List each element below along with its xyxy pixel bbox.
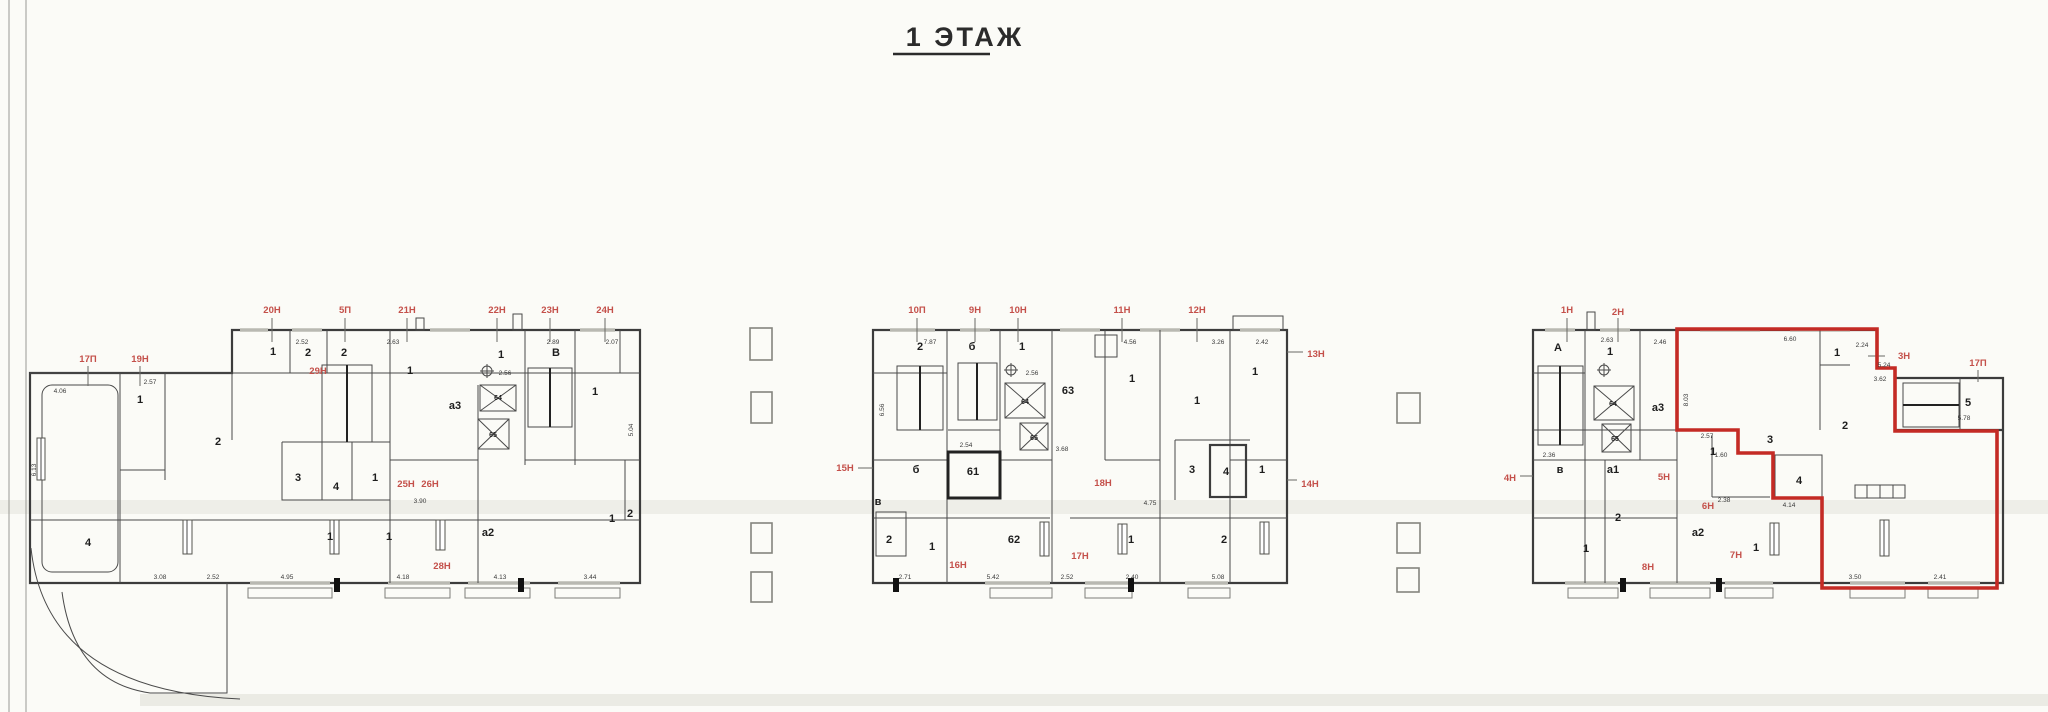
scan-band-bottom	[140, 694, 2048, 706]
hatched-duct-box	[1855, 485, 1905, 498]
unit-label: 21Н	[398, 305, 416, 316]
unit-label: 23Н	[541, 305, 559, 316]
dim-label: 5.24	[1878, 362, 1891, 369]
unit-label: 16Н	[949, 560, 967, 571]
dim-label: 2.36	[1543, 452, 1556, 459]
unit-label: 17П	[79, 354, 97, 365]
room-label: 4	[333, 481, 340, 493]
room-label: а2	[482, 527, 494, 539]
unit-label: 5Н	[1658, 472, 1670, 483]
unit-label: 3Н	[1898, 351, 1910, 362]
dim-label: 3.90	[414, 498, 427, 505]
radiators	[37, 438, 445, 554]
axis-marker	[480, 364, 494, 378]
room-label: 2	[1842, 420, 1848, 432]
room-label: 1	[929, 541, 935, 553]
scan-band	[0, 500, 2048, 514]
room-label: 1	[137, 394, 143, 406]
dim-label: 4.18	[397, 574, 410, 581]
axis-marker	[1597, 363, 1611, 377]
dim-label: 5.04	[628, 423, 635, 436]
room-label: в	[1557, 464, 1564, 476]
room-label: 1	[609, 513, 615, 525]
room-label: 5	[1965, 397, 1971, 409]
dim-label: 2.89	[547, 339, 560, 346]
unit-label: 7Н	[1730, 550, 1742, 561]
floor-plan: 1 ЭТАЖ	[0, 0, 2048, 712]
dim-label: 2.52	[1061, 574, 1074, 581]
dim-label: 4.13	[494, 574, 507, 581]
dim-label: 2.54	[960, 442, 973, 449]
door-marks	[893, 578, 1134, 592]
dim-label: 4.56	[1124, 339, 1137, 346]
room-label: 1	[407, 365, 413, 377]
dim-label: 2.41	[1934, 574, 1947, 581]
unit-label: 9Н	[969, 305, 981, 316]
room-label: 3	[1189, 464, 1195, 476]
room-label: 2	[1221, 534, 1227, 546]
radiators	[1770, 520, 1889, 556]
dim-label: 6.60	[1784, 336, 1797, 343]
room-label: 3	[1767, 434, 1773, 446]
dim-label: 4.95	[281, 574, 294, 581]
door-marks	[1620, 578, 1722, 592]
building-section-middle: 10П 9Н 10Н 11Н 12Н 13Н 15Н 14Н 16Н 17Н 1…	[836, 305, 1325, 598]
dim-label: 2.57	[1701, 433, 1714, 440]
room-label: 64	[494, 395, 502, 402]
plan-title: 1 ЭТАЖ	[893, 22, 1024, 54]
dim-label: 3.68	[1056, 446, 1069, 453]
window-sills	[990, 588, 1230, 598]
dim-label: 4.14	[1783, 502, 1796, 509]
bay-window	[1233, 316, 1283, 330]
room-label: а3	[449, 400, 461, 412]
dim-label: 6.56	[879, 403, 886, 416]
dim-label: 2.46	[1654, 339, 1667, 346]
unit-label: 20Н	[263, 305, 281, 316]
room-label: 1	[327, 531, 333, 543]
window-sills	[248, 588, 620, 598]
room-label: 1	[592, 386, 598, 398]
room-label: 1	[1019, 341, 1025, 353]
dim-label: 2.40	[1126, 574, 1139, 581]
curved-terrace	[31, 548, 240, 699]
page-title: 1 ЭТАЖ	[906, 22, 1024, 52]
dim-label: 2.38	[1718, 497, 1731, 504]
building-section-right: 1Н 2Н 3Н 17П 4Н 5Н 6Н 7Н 8Н А 1 а3 64 65…	[1504, 305, 2003, 598]
room-label: 65	[489, 432, 497, 439]
room-label: 1	[386, 531, 392, 543]
unit-label: 1Н	[1561, 305, 1573, 316]
room-label: 64	[1609, 401, 1617, 408]
dim-label: 2.42	[1256, 339, 1269, 346]
room-label: б	[969, 341, 976, 353]
unit-label: 8Н	[1642, 562, 1654, 573]
room-label: 2	[1615, 512, 1621, 524]
room-label: А	[1554, 342, 1562, 354]
unit-label: 25Н	[397, 479, 415, 490]
dim-label: 2.07	[606, 339, 619, 346]
room-label: 63	[1062, 385, 1074, 397]
unit-label: 17П	[1969, 358, 1987, 369]
unit-label: 4Н	[1504, 473, 1516, 484]
dim-label: 2.52	[296, 339, 309, 346]
dim-label: 3.62	[1874, 376, 1887, 383]
room-label: 2	[341, 347, 347, 359]
unit-label: 10П	[908, 305, 926, 316]
dim-label: 8.03	[1683, 393, 1690, 406]
dim-label: 4.75	[1144, 500, 1157, 507]
room-label: 4	[1796, 475, 1803, 487]
dim-label: 2.63	[387, 339, 400, 346]
room-label: б	[913, 464, 920, 476]
elevator-shafts	[1005, 383, 1048, 450]
shaft	[416, 318, 424, 330]
room-label: 61	[967, 466, 979, 478]
unit-label: 18Н	[1094, 478, 1112, 489]
dim-label: 3.44	[584, 574, 597, 581]
windows	[1545, 330, 1980, 583]
shaft	[1587, 312, 1595, 330]
room-label: 4	[85, 537, 92, 549]
room-label: 2	[627, 508, 633, 520]
unit-label: 17Н	[1071, 551, 1089, 562]
shaft	[513, 314, 522, 330]
dim-label: 2.57	[144, 379, 157, 386]
room-label: 2	[305, 347, 311, 359]
unit-label: 2Н	[1612, 307, 1624, 318]
room-label: 2	[886, 534, 892, 546]
dim-label: 3.26	[1212, 339, 1225, 346]
unit-label: 26Н	[421, 479, 439, 490]
room-label: 1	[1607, 346, 1613, 358]
room-label: 1	[1128, 534, 1134, 546]
dim-label: 2.63	[1601, 337, 1614, 344]
unit-label: 5П	[339, 305, 351, 316]
room-label: 1	[1194, 395, 1200, 407]
room-label: а3	[1652, 402, 1664, 414]
room-label: 1	[1129, 373, 1135, 385]
room-label: 1	[1583, 543, 1589, 555]
room-label: 62	[1008, 534, 1020, 546]
dim-label: 5.08	[1212, 574, 1225, 581]
room-label: 2	[917, 341, 923, 353]
room-label: В	[552, 347, 560, 359]
room-label: 65	[1611, 436, 1619, 443]
unit-label: 28Н	[433, 561, 451, 572]
room-label: в	[875, 496, 882, 508]
room-label: 1	[1834, 347, 1840, 359]
dim-label: 2.24	[1856, 342, 1869, 349]
room-label: 1	[270, 346, 276, 358]
dim-label: 7.87	[924, 339, 937, 346]
unit-label: 11Н	[1114, 305, 1131, 316]
room4-rounded-wall	[42, 385, 118, 572]
unit-label: 22Н	[488, 305, 506, 316]
axis-marker	[1004, 363, 1018, 377]
room-label: 1	[1259, 464, 1265, 476]
dim-label: 2.71	[899, 574, 912, 581]
dim-label: 2.52	[207, 574, 220, 581]
room-label: 1	[1252, 366, 1258, 378]
dim-label: 3.08	[154, 574, 167, 581]
room-label: 1	[498, 349, 504, 361]
room-label: 2	[215, 436, 221, 448]
unit-label: 24Н	[596, 305, 614, 316]
dim-label: 5.42	[987, 574, 1000, 581]
room-label: 3	[295, 472, 301, 484]
room-label: а2	[1692, 527, 1704, 539]
room-label: 64	[1021, 399, 1029, 406]
room-label: 65	[1030, 435, 1038, 442]
dim-label: 3.50	[1849, 574, 1862, 581]
room-label: а1	[1607, 464, 1619, 476]
unit-label: 14Н	[1301, 479, 1319, 490]
unit-label: 10Н	[1009, 305, 1027, 316]
dim-label: 1.60	[1715, 452, 1728, 459]
unit-label: 6Н	[1702, 501, 1714, 512]
room-label: 4	[1223, 466, 1230, 478]
dim-label: 4.06	[54, 388, 67, 395]
unit-label: 19Н	[131, 354, 149, 365]
unit-label: 15Н	[836, 463, 854, 474]
closet	[1095, 335, 1117, 357]
unit-label: 29Н	[309, 366, 327, 377]
dim-label: 2.56	[1026, 370, 1039, 377]
page-border-lines	[9, 0, 26, 712]
room-label: 1	[372, 472, 378, 484]
dim-label: 5.78	[1958, 415, 1971, 422]
dim-label: 6.13	[31, 463, 38, 476]
unit-label: 12Н	[1188, 305, 1206, 316]
scanned-floor-plan-page: 1 ЭТАЖ	[0, 0, 2048, 712]
room-label: 1	[1753, 542, 1759, 554]
unit-label: 13Н	[1307, 349, 1325, 360]
partitions	[1533, 330, 1997, 583]
dim-label: 2.56	[499, 370, 512, 377]
